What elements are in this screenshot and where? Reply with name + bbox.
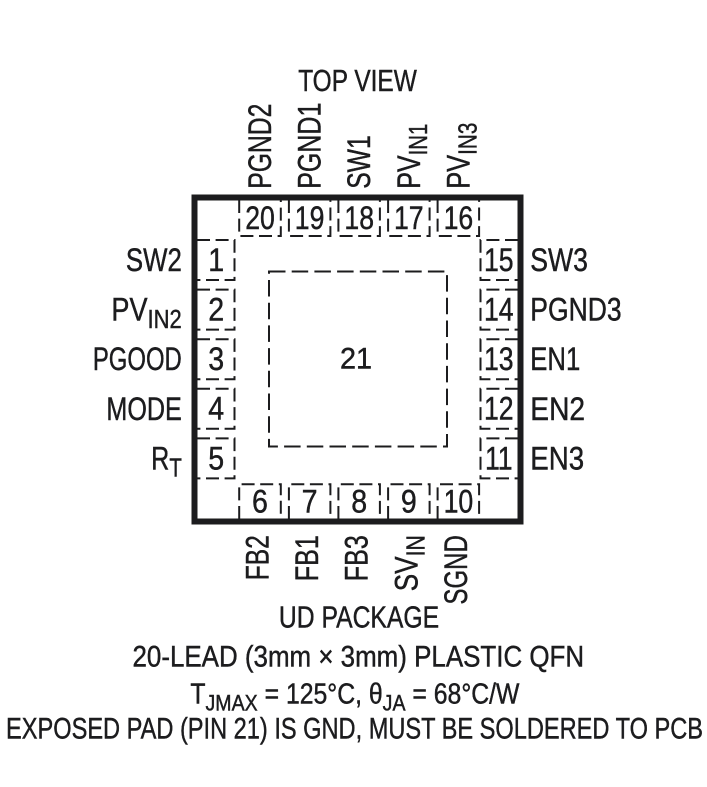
svg-text:21: 21 (340, 342, 372, 376)
svg-text:EN2: EN2 (530, 392, 585, 427)
svg-text:9: 9 (401, 484, 417, 520)
svg-text:EN3: EN3 (530, 442, 584, 477)
svg-text:EXPOSED PAD (PIN 21) IS GND, M: EXPOSED PAD (PIN 21) IS GND, MUST BE SOL… (6, 712, 703, 745)
svg-text:SW3: SW3 (530, 243, 588, 279)
svg-text:4: 4 (208, 391, 224, 427)
svg-text:3: 3 (208, 341, 224, 377)
svg-text:16: 16 (444, 200, 474, 236)
svg-text:18: 18 (344, 200, 374, 236)
svg-text:PGND1: PGND1 (293, 103, 329, 189)
svg-text:PGND2: PGND2 (243, 104, 279, 189)
svg-text:FB3: FB3 (340, 535, 376, 581)
svg-text:SW1: SW1 (342, 135, 378, 189)
svg-text:PGOOD: PGOOD (93, 341, 182, 377)
svg-text:2: 2 (208, 292, 224, 328)
svg-text:SGND: SGND (437, 535, 473, 604)
svg-text:19: 19 (295, 200, 325, 236)
svg-text:13: 13 (484, 342, 514, 378)
svg-text:15: 15 (484, 242, 514, 278)
svg-text:20: 20 (245, 200, 275, 236)
svg-text:PGND3: PGND3 (530, 292, 621, 328)
svg-text:8: 8 (351, 484, 367, 520)
svg-text:12: 12 (484, 391, 514, 427)
svg-text:SW2: SW2 (126, 243, 182, 278)
svg-text:TOP VIEW: TOP VIEW (298, 63, 417, 97)
svg-text:EN1: EN1 (530, 343, 580, 378)
svg-text:10: 10 (444, 484, 474, 520)
svg-text:11: 11 (485, 441, 513, 477)
svg-text:14: 14 (484, 292, 514, 328)
svg-text:5: 5 (208, 441, 224, 477)
svg-text:6: 6 (252, 484, 268, 520)
svg-text:1: 1 (208, 242, 224, 278)
svg-text:FB2: FB2 (240, 535, 276, 580)
svg-text:7: 7 (302, 484, 318, 520)
svg-text:17: 17 (394, 200, 424, 236)
svg-text:FB1: FB1 (290, 535, 326, 581)
svg-text:MODE: MODE (106, 392, 181, 428)
svg-text:UD PACKAGE: UD PACKAGE (279, 600, 439, 634)
svg-text:20-LEAD (3mm × 3mm) PLASTIC QF: 20-LEAD (3mm × 3mm) PLASTIC QFN (132, 640, 584, 673)
